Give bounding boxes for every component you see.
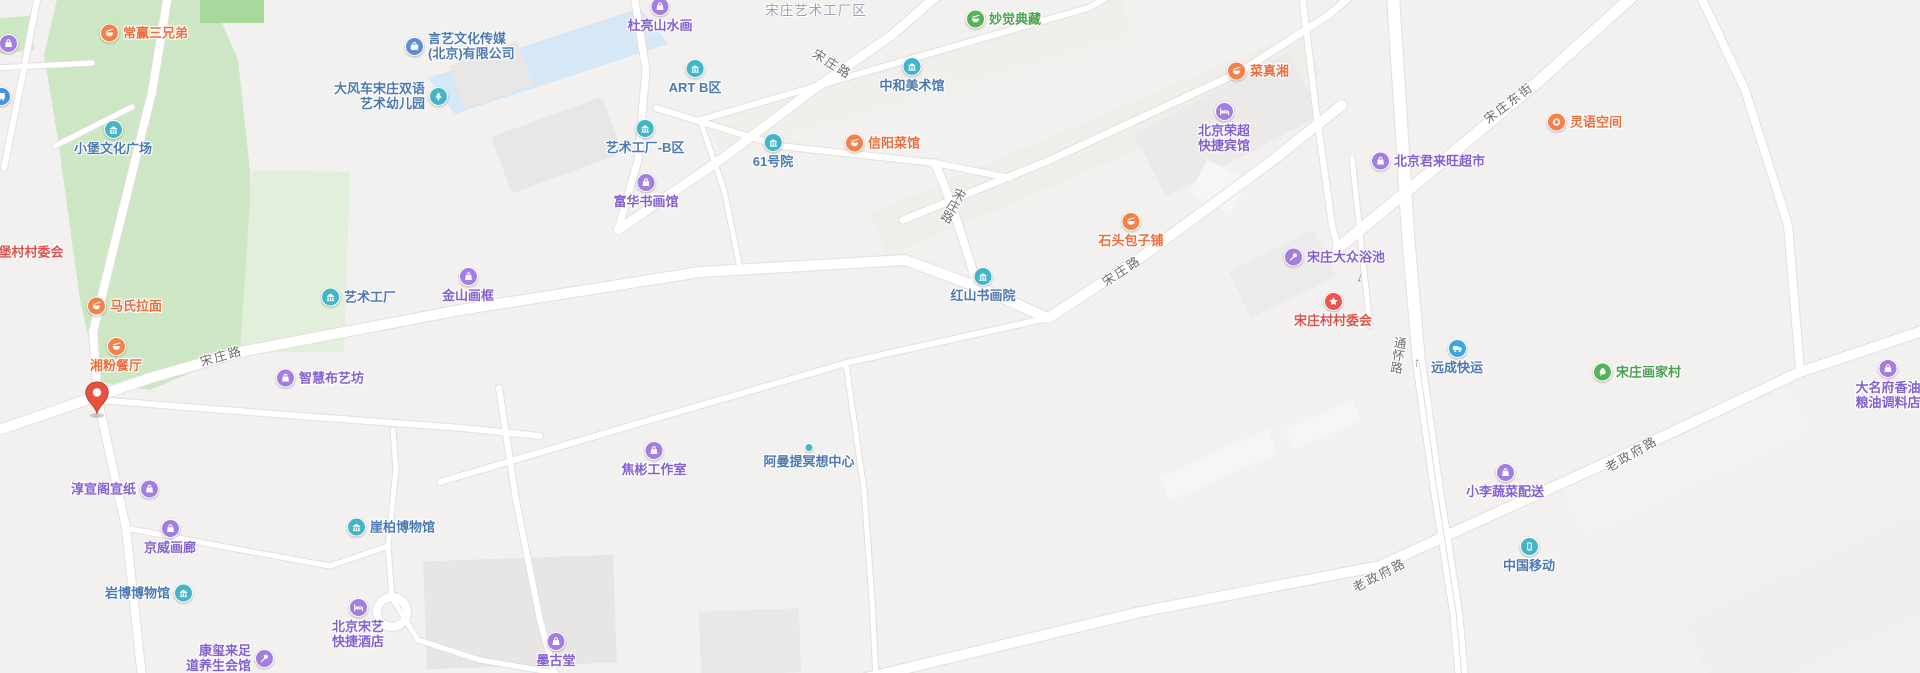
poi-layer: 常赢三兄弟小堡文化广场言艺文化传媒(北京)有限公司大风车宋庄双语艺术幼儿园杜亮山…: [0, 0, 1920, 673]
shopping-bag-icon: [160, 519, 179, 538]
poi-label: 富华书画馆: [613, 194, 678, 209]
poi-label: 宋庄村村委会: [1294, 313, 1372, 328]
poi-damingfu-condiment-shop[interactable]: 大名府香油粮油调料店: [1855, 359, 1920, 410]
poi-label: 湘粉餐厅: [90, 358, 142, 373]
poi-yabai-museum[interactable]: 崖柏博物馆: [347, 518, 439, 537]
teapot-icon: [966, 10, 985, 29]
poi-label: 大风车宋庄双语艺术幼儿园: [334, 81, 425, 111]
bus-icon: [0, 87, 11, 106]
poi-art-b-zone[interactable]: ART B区: [669, 59, 722, 95]
poi-label: 小李蔬菜配送: [1466, 484, 1544, 499]
shopping-bag-icon: [1495, 463, 1514, 482]
poi-lingyu-space[interactable]: 灵语空间: [1547, 113, 1626, 132]
restaurant-icon: [1227, 62, 1246, 81]
shopping-bag-icon: [1371, 152, 1390, 171]
poi-label: 崖柏博物馆: [370, 520, 435, 535]
restaurant-icon: [1121, 212, 1140, 231]
poi-miaojue-diancang[interactable]: 妙觉典藏: [966, 10, 1045, 29]
truck-icon: [1447, 339, 1466, 358]
poi-yanbo-museum[interactable]: 岩博博物馆: [101, 584, 193, 603]
restaurant-icon: [100, 24, 119, 43]
shopping-bag-icon: [140, 480, 159, 499]
poi-fuhua-calligraphy-gallery[interactable]: 富华书画馆: [613, 173, 678, 209]
tree-icon: [429, 87, 448, 106]
poi-chunxuange-xuan-paper[interactable]: 淳宣阁宣纸: [67, 480, 159, 499]
poi-china-mobile[interactable]: 中国移动: [1503, 537, 1555, 573]
poi-label: 宋庄画家村: [1616, 365, 1681, 380]
poi-songzhuang-public-bath[interactable]: 宋庄大众浴池: [1284, 248, 1389, 267]
road-label: 老政府路: [1601, 430, 1661, 475]
phone-icon: [1519, 537, 1538, 556]
poi-yard-61[interactable]: 61号院: [753, 133, 793, 169]
poi-label: 墨古堂: [536, 653, 575, 668]
area-label: 宋庄艺术工厂区: [765, 0, 867, 19]
poi-mogutang[interactable]: 墨古堂: [536, 632, 575, 668]
poi-label: 红山书画院: [950, 288, 1015, 303]
poi-label: ART B区: [669, 80, 722, 95]
shopping-bag-icon: [1878, 359, 1897, 378]
poi-label: 远成快运: [1431, 360, 1483, 375]
poi-label: 常赢三兄弟: [123, 26, 188, 41]
shopping-bag-icon: [644, 441, 663, 460]
road-label: 宋庄路: [810, 43, 857, 82]
poi-dafengche-kindergarten[interactable]: 大风车宋庄双语艺术幼儿园: [330, 81, 448, 111]
poi-label: 马氏拉面: [110, 299, 162, 314]
poi-label: 61号院: [753, 154, 793, 169]
dot-icon: [804, 443, 813, 452]
shopping-bag-icon: [0, 34, 18, 53]
poi-label: 北京宋艺快捷酒店: [332, 619, 384, 649]
poi-xiaobao-culture-plaza[interactable]: 小堡文化广场: [74, 120, 152, 156]
pushpin-icon: [1284, 248, 1303, 267]
poi-xinyang-restaurant[interactable]: 信阳菜馆: [845, 134, 924, 153]
poi-label: 岩博博物馆: [105, 586, 170, 601]
poi-baocun-village-committee[interactable]: 堡村村委会: [0, 245, 64, 260]
poi-art-factory[interactable]: 艺术工厂: [321, 288, 400, 307]
poi-label: 焦彬工作室: [621, 462, 686, 477]
poi-duliang-shanshui-painting[interactable]: 杜亮山水画: [627, 0, 692, 33]
poi-label: 妙觉典藏: [989, 12, 1041, 27]
poi-xiaoli-vegetable-delivery[interactable]: 小李蔬菜配送: [1466, 463, 1544, 499]
poi-label: 杜亮山水画: [627, 18, 692, 33]
ring-icon: [1547, 113, 1566, 132]
poi-label: 菜真湘: [1250, 64, 1289, 79]
poi-label: 艺术工厂-B区: [606, 140, 685, 155]
poi-caizhenxiang[interactable]: 菜真湘: [1227, 62, 1293, 81]
poi-label: 艺术工厂: [344, 290, 396, 305]
poi-jiaobin-studio[interactable]: 焦彬工作室: [621, 441, 686, 477]
map-canvas[interactable]: 常赢三兄弟小堡文化广场言艺文化传媒(北京)有限公司大风车宋庄双语艺术幼儿园杜亮山…: [0, 0, 1920, 673]
hotel-icon: [348, 598, 367, 617]
road-label: 宋庄路: [197, 340, 244, 370]
poi-kangxi-foot-spa[interactable]: 康玺来足道养生会馆: [182, 643, 274, 673]
poi-shitou-baozi-shop[interactable]: 石头包子铺: [1098, 212, 1163, 248]
poi-label: 金山画框: [442, 288, 494, 303]
location-marker[interactable]: [82, 379, 112, 424]
road-direction-arrow-icon: ↑: [1413, 355, 1421, 369]
museum-icon: [103, 120, 122, 139]
hotel-icon: [1214, 102, 1233, 121]
poi-label: 大名府香油粮油调料店: [1855, 380, 1920, 410]
shopping-bag-icon: [276, 369, 295, 388]
poi-zhonghe-art-museum[interactable]: 中和美术馆: [879, 57, 944, 93]
museum-icon: [174, 584, 193, 603]
map-pin-icon: [82, 379, 112, 419]
poi-label: 石头包子铺: [1098, 233, 1163, 248]
poi-jinshan-picture-frames[interactable]: 金山画框: [442, 267, 494, 303]
poi-junlaiwang-supermarket[interactable]: 北京君来旺超市: [1371, 152, 1489, 171]
poi-jingwei-gallery[interactable]: 京威画廊: [144, 519, 196, 555]
poi-label: 北京荣超快捷宾馆: [1198, 123, 1250, 153]
museum-icon: [347, 518, 366, 537]
poi-label: 小堡文化广场: [74, 141, 152, 156]
road-label: 老政府路: [1349, 552, 1409, 595]
road-direction-arrow-icon: ↓: [1355, 270, 1364, 284]
road-label: 宋庄东街: [1479, 77, 1537, 127]
road-label: 通怀路: [1387, 335, 1406, 374]
poi-label: 京威画廊: [144, 540, 196, 555]
museum-icon: [636, 119, 655, 138]
poi-label: 北京君来旺超市: [1394, 154, 1485, 169]
poi-songzhuang-village-committee[interactable]: 宋庄村村委会: [1294, 292, 1372, 328]
scenic-icon: [1593, 363, 1612, 382]
poi-mashi-lamian[interactable]: 马氏拉面: [87, 297, 166, 316]
poi-amanti-meditation-center[interactable]: 阿曼提冥想中心: [763, 443, 854, 469]
poi-xiangfen-restaurant[interactable]: 湘粉餐厅: [90, 337, 142, 373]
shopping-bag-icon: [458, 267, 477, 286]
shopping-bag-icon: [546, 632, 565, 651]
pushpin-icon: [255, 649, 274, 668]
poi-hongshan-painting-academy[interactable]: 红山书画院: [950, 267, 1015, 303]
poi-rongchao-express-hotel[interactable]: 北京荣超快捷宾馆: [1198, 102, 1250, 153]
poi-label: 信阳菜馆: [868, 136, 920, 151]
poi-label: 宋庄大众浴池: [1307, 250, 1385, 265]
road-label: 宋庄路: [937, 185, 967, 225]
poi-songzhuang-painter-village[interactable]: 宋庄画家村: [1593, 363, 1685, 382]
museum-icon: [902, 57, 921, 76]
poi-songyi-express-hotel[interactable]: 北京宋艺快捷酒店: [332, 598, 384, 649]
restaurant-icon: [87, 297, 106, 316]
museum-icon: [321, 288, 340, 307]
poi-label: 淳宣阁宣纸: [71, 482, 136, 497]
poi-art-factory-b-zone[interactable]: 艺术工厂-B区: [606, 119, 685, 155]
shopping-bag-icon: [650, 0, 669, 16]
poi-edge-shop[interactable]: [0, 34, 18, 53]
poi-yanyi-culture-media[interactable]: 言艺文化传媒(北京)有限公司: [405, 31, 519, 61]
poi-label: 堡村村委会: [0, 245, 64, 260]
museum-icon: [686, 59, 705, 78]
road-label: 宋庄路: [1098, 250, 1145, 290]
poi-label: 灵语空间: [1570, 115, 1622, 130]
restaurant-icon: [106, 337, 125, 356]
poi-yuancheng-express[interactable]: 远成快运: [1431, 339, 1483, 375]
poi-zhihui-fabric-workshop[interactable]: 智慧布艺坊: [276, 369, 368, 388]
poi-label: 智慧布艺坊: [299, 371, 364, 386]
museum-icon: [764, 133, 783, 152]
poi-label: 康玺来足道养生会馆: [186, 643, 251, 673]
restaurant-icon: [845, 134, 864, 153]
poi-label: 言艺文化传媒(北京)有限公司: [428, 31, 515, 61]
poi-label: 阿曼提冥想中心: [763, 454, 854, 469]
museum-icon: [973, 267, 992, 286]
poi-label: 中国移动: [1503, 558, 1555, 573]
company-icon: [405, 37, 424, 56]
poi-label: 中和美术馆: [879, 78, 944, 93]
shopping-bag-icon: [636, 173, 655, 192]
poi-edge-transit[interactable]: [0, 87, 11, 106]
poi-changying-sanxiongdi[interactable]: 常赢三兄弟: [100, 24, 192, 43]
star-icon: [1323, 292, 1342, 311]
